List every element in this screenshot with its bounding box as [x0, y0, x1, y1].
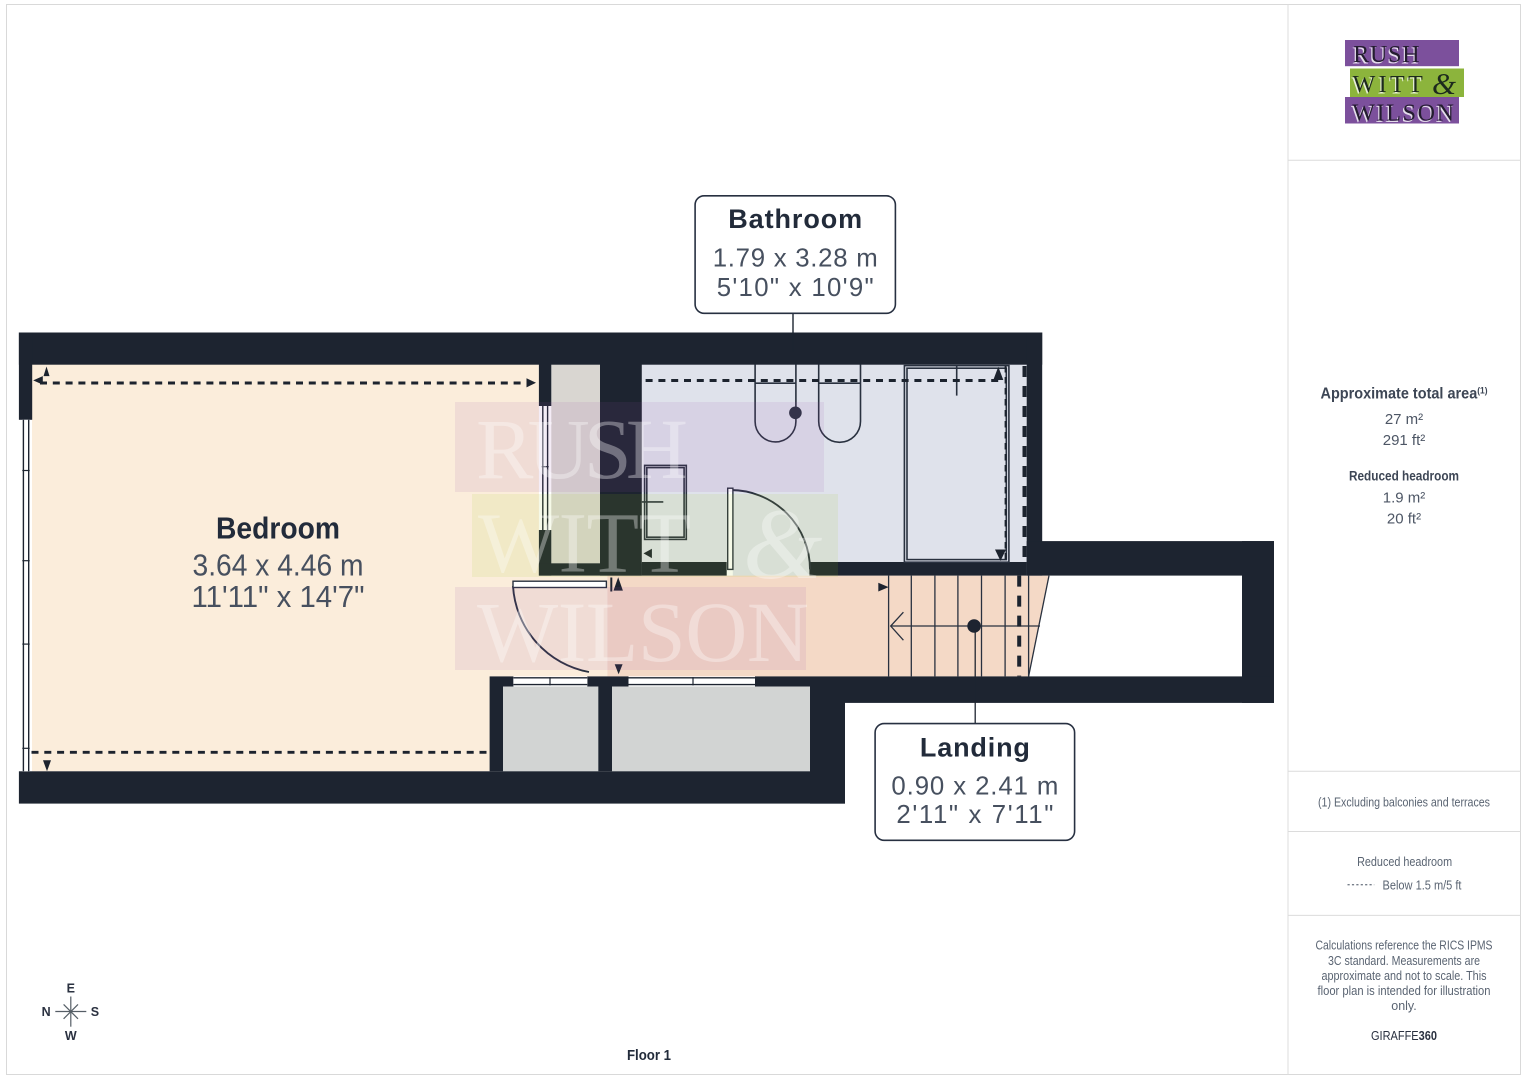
svg-text:RUSH: RUSH	[1353, 42, 1420, 68]
svg-text:27 m²: 27 m²	[1385, 411, 1423, 428]
svg-text:Floor 1: Floor 1	[627, 1047, 671, 1064]
svg-text:N: N	[42, 1005, 51, 1019]
svg-text:Calculations reference the RIC: Calculations reference the RICS IPMS	[1316, 938, 1493, 952]
svg-text:WITT: WITT	[1353, 72, 1427, 98]
svg-text:0.90 x 2.41 m: 0.90 x 2.41 m	[891, 772, 1058, 800]
svg-text:11'11" x 14'7": 11'11" x 14'7"	[192, 579, 365, 614]
svg-text:WITT: WITT	[478, 495, 691, 591]
svg-text:2'11" x 7'11": 2'11" x 7'11"	[896, 801, 1053, 829]
svg-text:Below 1.5 m/5 ft: Below 1.5 m/5 ft	[1383, 877, 1462, 892]
svg-text:GIRAFFE360: GIRAFFE360	[1371, 1028, 1437, 1043]
svg-text:W: W	[65, 1029, 77, 1043]
svg-text:Approximate total area(1): Approximate total area(1)	[1321, 386, 1488, 403]
svg-text:WILSON: WILSON	[1352, 101, 1456, 127]
svg-text:(1) Excluding balconies and te: (1) Excluding balconies and terraces	[1318, 795, 1490, 810]
svg-text:291 ft²: 291 ft²	[1383, 432, 1426, 449]
svg-text:1.79 x 3.28 m: 1.79 x 3.28 m	[713, 245, 878, 273]
svg-text:&: &	[1432, 66, 1456, 101]
svg-text:approximate and not to scale.: approximate and not to scale. This	[1322, 969, 1487, 983]
svg-text:20 ft²: 20 ft²	[1387, 511, 1421, 528]
svg-text:floor plan is intended for ill: floor plan is intended for illustration	[1318, 984, 1491, 998]
svg-text:S: S	[91, 1005, 99, 1019]
svg-text:Bathroom: Bathroom	[728, 204, 862, 234]
svg-text:Landing: Landing	[920, 732, 1030, 762]
svg-text:Reduced headroom: Reduced headroom	[1349, 469, 1459, 484]
svg-text:&: &	[743, 488, 822, 601]
svg-text:5'10" x 10'9": 5'10" x 10'9"	[717, 274, 874, 302]
svg-text:E: E	[67, 981, 75, 995]
svg-text:only.: only.	[1391, 999, 1416, 1013]
svg-text:3C standard. Measurements are: 3C standard. Measurements are	[1328, 954, 1480, 968]
svg-text:Bedroom: Bedroom	[216, 511, 340, 546]
svg-text:1.9 m²: 1.9 m²	[1383, 490, 1426, 507]
svg-text:RUSH: RUSH	[476, 401, 688, 497]
svg-text:3.64 x 4.46 m: 3.64 x 4.46 m	[193, 548, 364, 583]
svg-text:Reduced headroom: Reduced headroom	[1357, 854, 1452, 869]
